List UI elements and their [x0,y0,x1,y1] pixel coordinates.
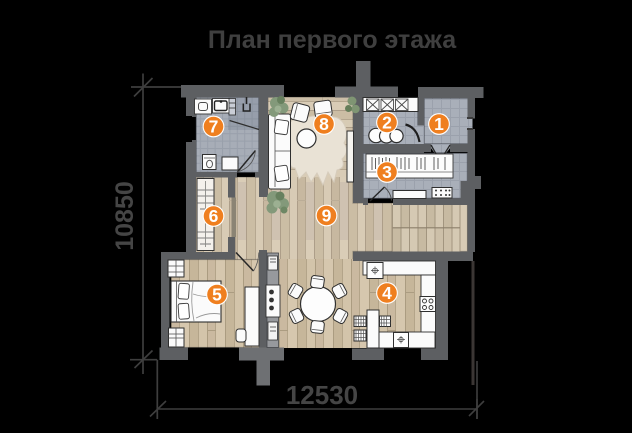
svg-text:10850: 10850 [111,181,139,251]
svg-text:8: 8 [319,114,329,134]
svg-text:4: 4 [382,283,392,303]
svg-text:5: 5 [212,285,222,305]
svg-text:9: 9 [322,206,332,226]
svg-text:2: 2 [382,113,392,133]
svg-text:1: 1 [434,114,444,134]
svg-text:План первого этажа: План первого этажа [208,26,457,54]
svg-text:3: 3 [382,162,392,182]
svg-text:12530: 12530 [286,380,358,410]
svg-text:7: 7 [209,117,219,137]
svg-text:6: 6 [209,206,219,226]
